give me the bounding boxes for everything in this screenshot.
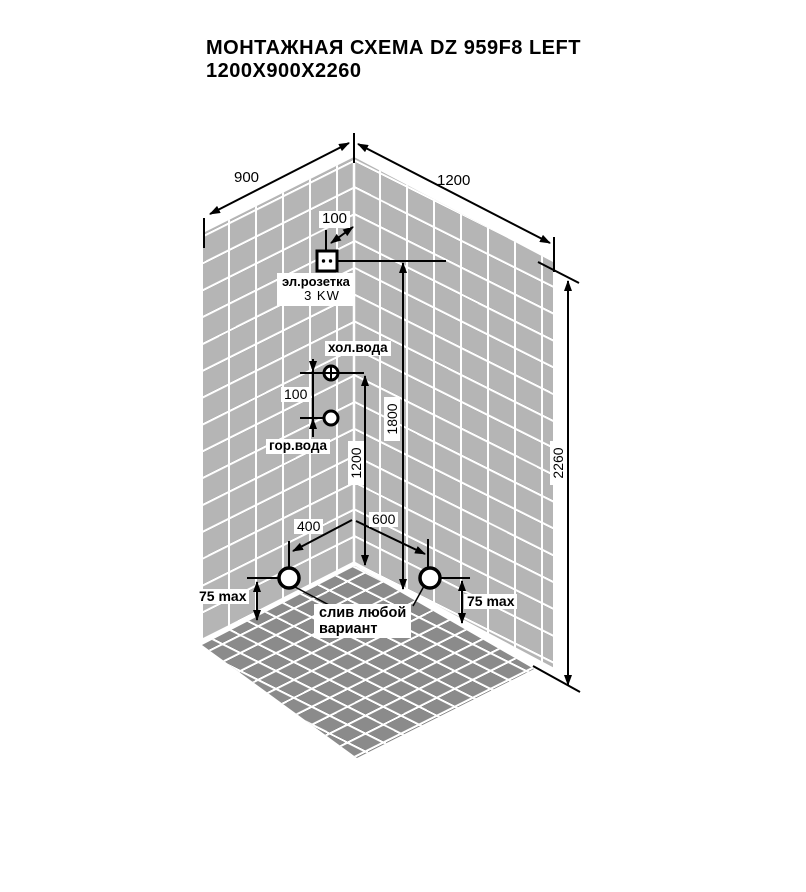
socket-pin-right xyxy=(329,259,332,262)
hot-water-label: гор.вода xyxy=(266,439,330,454)
dim-900-line xyxy=(210,143,349,214)
outlet-power: 3 KW xyxy=(282,289,350,303)
dim-1800-label: 1800 xyxy=(384,397,400,441)
title-line-1: МОНТАЖНАЯ СХЕМА DZ 959F8 LEFT xyxy=(206,37,581,60)
drain-left xyxy=(279,568,299,588)
drain-right xyxy=(420,568,440,588)
dim-900-label: 900 xyxy=(234,170,259,187)
dim-1200-top-label: 1200 xyxy=(437,173,470,190)
dim-1200-mid-label: 1200 xyxy=(348,441,364,485)
power-socket xyxy=(317,251,337,271)
dim-2260-bottom-tick xyxy=(533,666,580,692)
dim-100-mid-label: 100 xyxy=(281,387,310,402)
dimension-linework xyxy=(0,0,806,892)
diagram-title: МОНТАЖНАЯ СХЕМА DZ 959F8 LEFT 1200X900X2… xyxy=(206,37,581,83)
dim-400-label: 400 xyxy=(294,519,323,534)
hot-water-point xyxy=(324,411,338,425)
drain-note-line-1: слив любой xyxy=(319,605,406,621)
dim-100-top-label: 100 xyxy=(319,211,350,228)
dim-600-label: 600 xyxy=(369,512,398,527)
outlet-label: эл.розетка 3 KW xyxy=(277,273,355,306)
drain-note: слив любой вариант xyxy=(314,604,411,638)
dim-75-right-label: 75 max xyxy=(464,594,517,609)
dim-2260-top-tick xyxy=(538,262,579,283)
cold-water-label: хол.вода xyxy=(325,341,391,356)
socket-pin-left xyxy=(322,259,325,262)
outlet-name: эл.розетка xyxy=(282,275,350,289)
installation-diagram: МОНТАЖНАЯ СХЕМА DZ 959F8 LEFT 1200X900X2… xyxy=(0,0,806,892)
dim-100-top-line xyxy=(331,227,353,243)
dim-2260-label: 2260 xyxy=(550,441,566,485)
dim-75-left-label: 75 max xyxy=(196,589,249,604)
title-line-2: 1200X900X2260 xyxy=(206,60,581,83)
drain-note-line-2: вариант xyxy=(319,621,406,637)
dim-1200-top-line xyxy=(358,144,550,243)
